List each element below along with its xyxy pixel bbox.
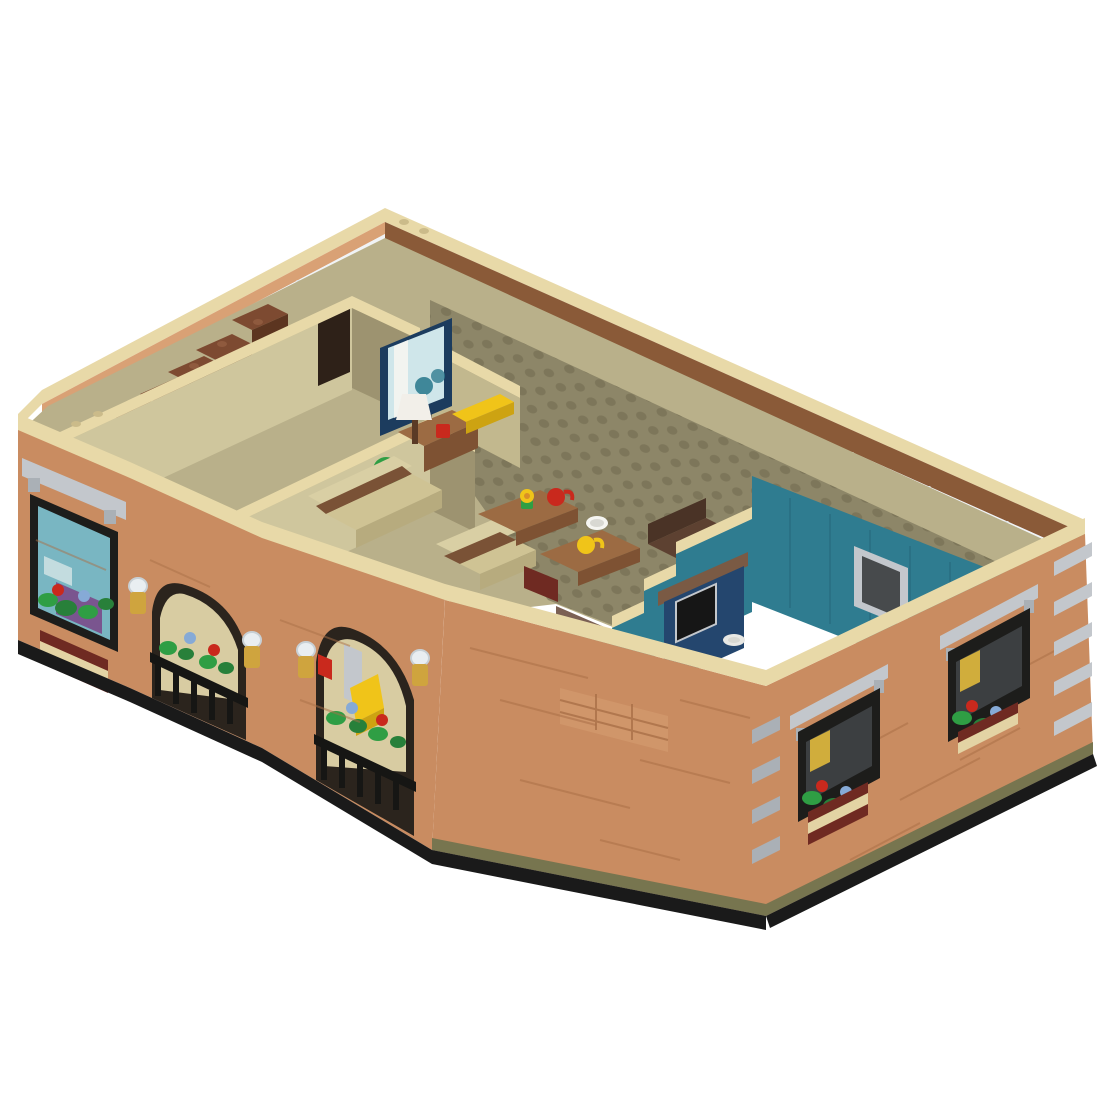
railing-leaves bbox=[159, 641, 177, 655]
table-lamp-shade bbox=[396, 394, 432, 420]
red-rose bbox=[816, 780, 828, 792]
red-mug bbox=[547, 488, 565, 506]
lego-building-render: Isometric 3D render of a LEGO-style apar… bbox=[0, 0, 1100, 1100]
kitchen-sink-basin bbox=[728, 637, 740, 643]
railing-leaves bbox=[218, 662, 234, 674]
red-rose bbox=[966, 700, 978, 712]
red-box bbox=[436, 424, 450, 438]
blue-rose bbox=[184, 632, 196, 644]
lantern-clear-top bbox=[243, 632, 261, 648]
tv-teal-motif bbox=[415, 377, 433, 395]
flower-box-leaves bbox=[78, 605, 98, 619]
tv-teal-motif bbox=[431, 369, 445, 383]
flower-box-leaves bbox=[802, 791, 822, 805]
lantern-clear-top bbox=[129, 578, 147, 594]
red-rose bbox=[208, 644, 220, 656]
flower-box-leaves bbox=[98, 598, 114, 610]
lintel-bracket bbox=[104, 510, 116, 524]
flower-box-leaves bbox=[55, 600, 77, 616]
railing-leaves bbox=[199, 655, 217, 669]
white-bowl-inner bbox=[590, 519, 604, 527]
yellow-mug bbox=[577, 536, 595, 554]
railing-leaves bbox=[390, 736, 406, 748]
flower-pot-center bbox=[524, 493, 530, 499]
railing-leaves bbox=[178, 648, 194, 660]
red-rose bbox=[376, 714, 388, 726]
lantern-body bbox=[412, 664, 428, 686]
flower-box-leaves bbox=[952, 711, 972, 725]
lantern-clear-top bbox=[411, 650, 429, 666]
lantern-body bbox=[244, 646, 260, 668]
lantern-body bbox=[130, 592, 146, 614]
lantern-clear-top bbox=[297, 642, 315, 658]
blue-rose bbox=[78, 590, 90, 602]
table-lamp-stem bbox=[412, 420, 418, 444]
isometric-building-illustration bbox=[0, 0, 1100, 1100]
blue-rose bbox=[346, 702, 358, 714]
red-rose bbox=[52, 584, 64, 596]
lintel-bracket bbox=[28, 478, 40, 492]
railing-leaves bbox=[368, 727, 388, 741]
lantern-body bbox=[298, 656, 314, 678]
